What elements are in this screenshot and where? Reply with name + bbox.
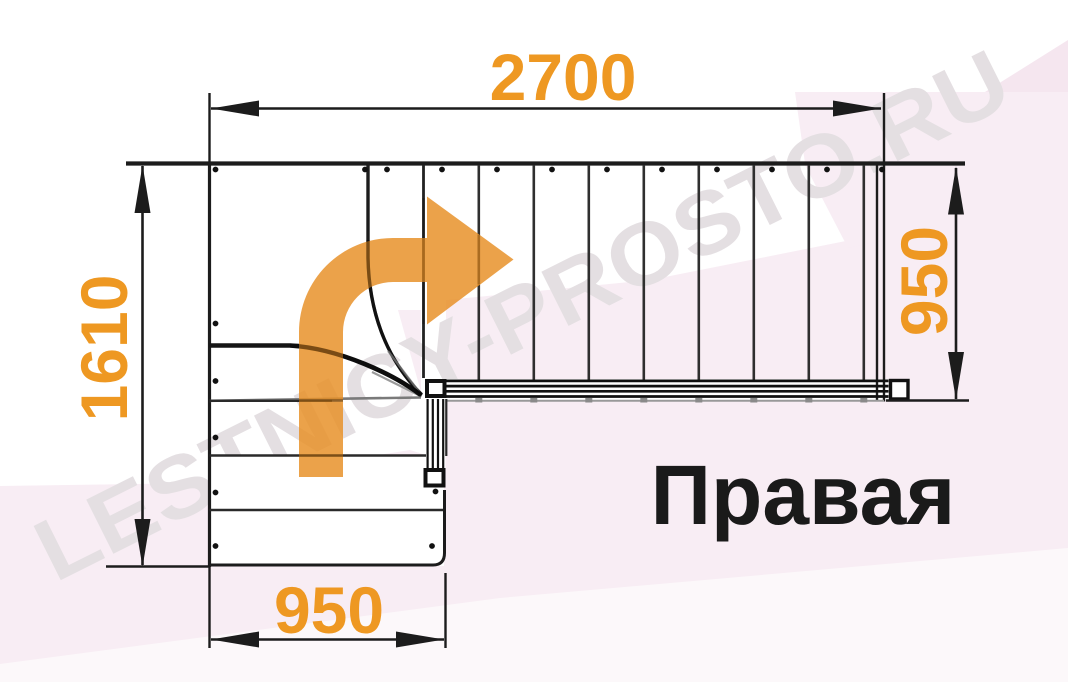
svg-text:950: 950 bbox=[274, 573, 384, 647]
svg-text:1610: 1610 bbox=[67, 275, 141, 422]
svg-text:950: 950 bbox=[887, 226, 961, 336]
svg-text:Правая: Правая bbox=[651, 448, 956, 542]
svg-text:2700: 2700 bbox=[490, 40, 637, 114]
